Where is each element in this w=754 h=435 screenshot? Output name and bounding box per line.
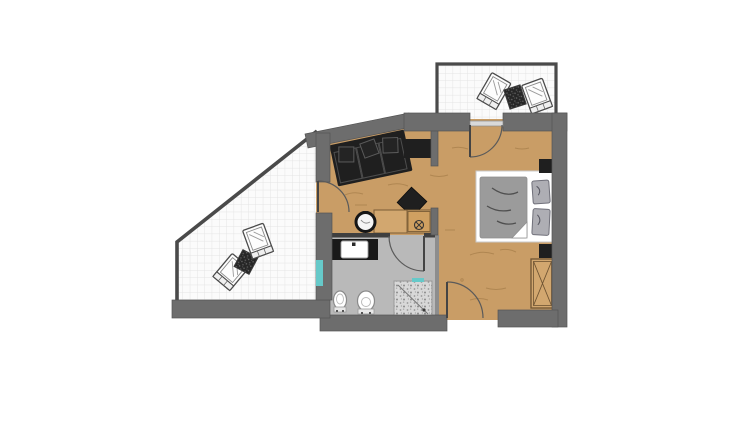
faucet-icon <box>352 243 356 247</box>
shower-glass-panel <box>412 278 424 282</box>
round-washbasin <box>356 211 375 232</box>
bidet <box>334 291 347 312</box>
wall-bottom-terrace <box>172 300 330 318</box>
bathroom <box>330 233 439 318</box>
wall-right <box>552 113 567 327</box>
terrace-lower <box>177 131 317 300</box>
kitchenette-counter <box>374 210 437 233</box>
wardrobe <box>531 259 554 308</box>
terrace-lower-floor <box>177 131 317 300</box>
double-bed <box>476 171 554 242</box>
cooktop-unit <box>408 212 430 232</box>
bathroom-partition-wall <box>435 235 439 315</box>
bathroom-wall-line <box>330 233 390 238</box>
wall-bottom-bathroom <box>320 315 447 331</box>
shower-drain-icon <box>422 308 425 311</box>
floor-plan-page <box>0 0 754 435</box>
wall-left-lower <box>316 213 332 300</box>
wall-stub-upper <box>431 131 438 166</box>
bathroom-glass-panel <box>316 260 323 286</box>
pillow <box>532 180 551 204</box>
duvet <box>480 177 527 238</box>
sofa-pillow <box>339 147 354 162</box>
vanity <box>332 239 378 260</box>
pillow <box>532 209 550 236</box>
wall-left-upper <box>316 133 330 182</box>
sofa-pillow <box>383 138 399 154</box>
wall-bottom-right <box>498 310 558 327</box>
floor-plan-canvas <box>0 0 754 435</box>
toilet <box>358 291 375 314</box>
shower <box>394 281 432 318</box>
wall-stub-lower <box>431 208 438 235</box>
sideboard <box>404 139 433 158</box>
wall-top-left <box>404 113 470 131</box>
bedroom-terrace-glass-sill <box>470 121 503 126</box>
